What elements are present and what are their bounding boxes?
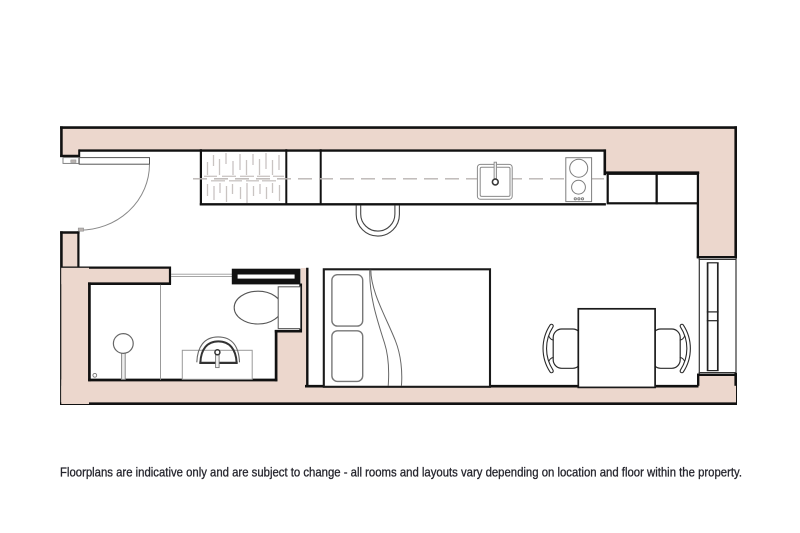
svg-text:Floorplans are indicative only: Floorplans are indicative only and are s… [60, 464, 742, 479]
